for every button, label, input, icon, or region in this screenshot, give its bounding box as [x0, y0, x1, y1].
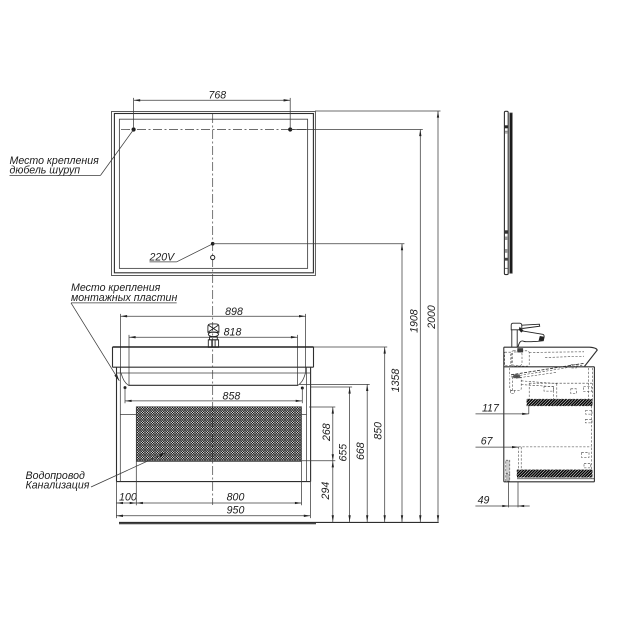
svg-text:дюбель шуруп: дюбель шуруп	[10, 165, 81, 177]
svg-text:67: 67	[481, 436, 494, 448]
svg-text:850: 850	[373, 422, 385, 440]
svg-text:655: 655	[338, 444, 350, 462]
svg-text:294: 294	[320, 482, 332, 501]
svg-text:49: 49	[478, 495, 490, 507]
svg-text:668: 668	[355, 442, 367, 460]
svg-text:117: 117	[482, 402, 500, 414]
svg-text:1908: 1908	[408, 309, 420, 333]
svg-text:858: 858	[223, 390, 241, 402]
svg-text:268: 268	[321, 423, 333, 442]
svg-text:768: 768	[208, 89, 226, 101]
svg-text:100: 100	[119, 492, 137, 504]
svg-text:монтажных пластин: монтажных пластин	[71, 292, 177, 304]
svg-text:800: 800	[227, 492, 245, 504]
svg-text:818: 818	[224, 327, 242, 339]
svg-text:950: 950	[227, 504, 245, 516]
svg-text:2000: 2000	[426, 305, 438, 330]
svg-text:1358: 1358	[390, 369, 402, 393]
svg-text:898: 898	[225, 306, 243, 318]
svg-text:Канализация: Канализация	[26, 479, 90, 491]
